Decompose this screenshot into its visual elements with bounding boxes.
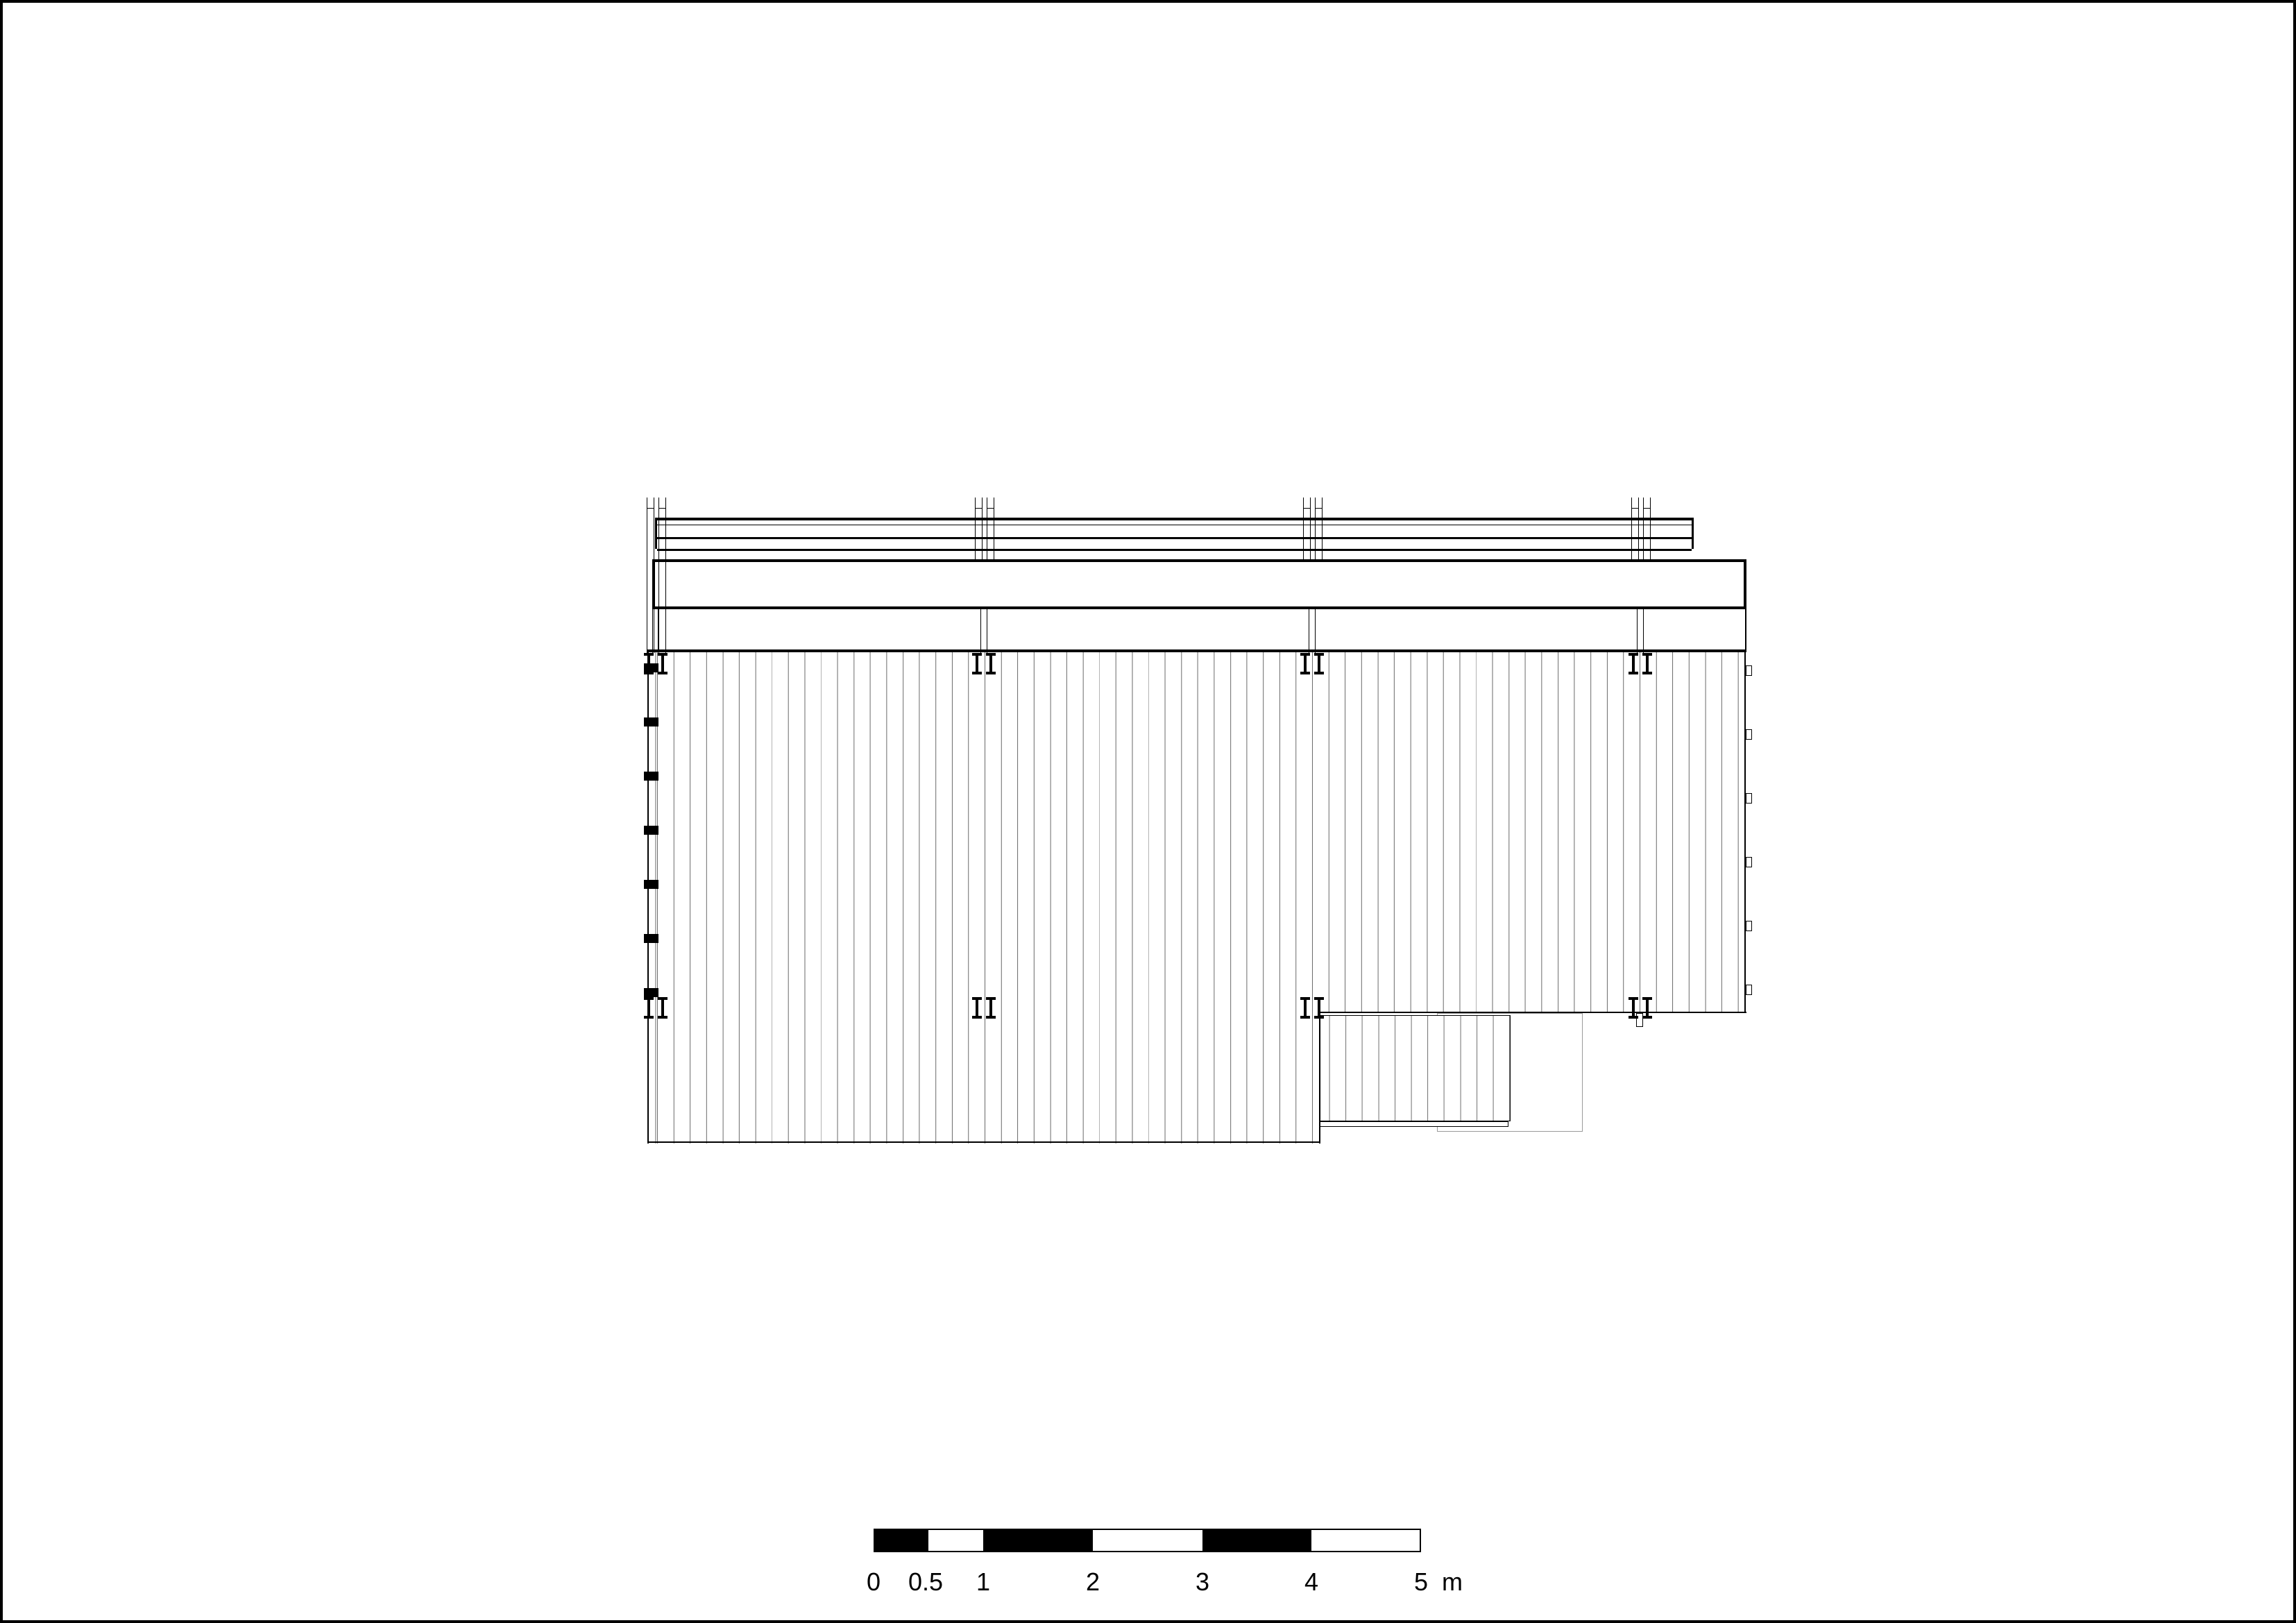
channel-profile — [1642, 653, 1652, 674]
scale-bar-segment — [1093, 1530, 1202, 1551]
post-base-fitting — [972, 653, 996, 669]
board-clip — [1746, 921, 1752, 931]
post-shaft — [1637, 609, 1644, 653]
purlin-bottom — [657, 534, 1692, 551]
joist-marker — [644, 717, 658, 726]
edge-beam-band — [658, 609, 1746, 652]
board-clip — [1746, 985, 1752, 995]
scale-label-0-5: 0.5 — [908, 1567, 943, 1597]
scale-unit-label: m — [1442, 1567, 1463, 1597]
joist-marker — [644, 934, 658, 943]
channel-profile — [986, 997, 996, 1019]
deck-right-edge — [1744, 652, 1746, 1013]
step-fascia — [1320, 1121, 1508, 1127]
roof-beam-band — [652, 559, 1746, 609]
channel-profile — [972, 997, 982, 1019]
scale-bar — [874, 1529, 1421, 1552]
scale-label-1: 1 — [976, 1567, 990, 1597]
post-base-fitting — [1300, 653, 1324, 669]
post-base-fitting — [972, 997, 996, 1013]
scale-label-0: 0 — [867, 1567, 881, 1597]
post-base-fitting — [1629, 653, 1652, 669]
joist-marker — [644, 772, 658, 781]
post-shaft — [652, 609, 659, 653]
channel-profile — [1629, 997, 1638, 1019]
scale-label-4: 4 — [1304, 1567, 1318, 1597]
board-clip — [1746, 793, 1752, 804]
post-shaft — [1309, 609, 1316, 653]
channel-profile — [986, 653, 996, 674]
scale-bar-segment — [1202, 1530, 1311, 1551]
joist-marker — [644, 880, 658, 889]
scale-label-2: 2 — [1086, 1567, 1100, 1597]
purlin-band — [655, 518, 1694, 549]
deck-top-edge — [647, 649, 1746, 652]
scale-bar-segment — [875, 1530, 928, 1551]
channel-profile — [972, 653, 982, 674]
board-clip — [1746, 729, 1752, 740]
deck-bottom-edge-right — [1319, 1012, 1746, 1013]
deck-bottom-edge-left — [647, 1141, 1320, 1143]
channel-profile — [1314, 653, 1324, 674]
board-clip — [1746, 665, 1752, 676]
channel-profile — [1300, 997, 1310, 1019]
scale-label-5: 5 — [1414, 1567, 1428, 1597]
scale-label-3: 3 — [1196, 1567, 1209, 1597]
board-clip — [1746, 857, 1752, 867]
post-base-fitting — [644, 997, 667, 1013]
scale-bar-segment — [928, 1530, 983, 1551]
post-shaft — [980, 609, 987, 653]
scale-bar-segment — [983, 1530, 1093, 1551]
channel-profile — [644, 997, 654, 1019]
channel-profile — [658, 653, 667, 674]
scale-bar-segment — [1311, 1530, 1420, 1551]
channel-profile — [1314, 997, 1324, 1019]
joist-marker — [644, 663, 658, 672]
drawing-sheet: 0 0.5 1 2 3 4 5 m — [0, 0, 2296, 1623]
step-boards — [1320, 1015, 1511, 1121]
channel-profile — [658, 997, 667, 1019]
joist-marker — [644, 826, 658, 835]
post-base-fitting — [1629, 997, 1652, 1013]
joist-marker — [644, 988, 658, 997]
channel-profile — [1300, 653, 1310, 674]
channel-profile — [1629, 653, 1638, 674]
channel-profile — [1642, 997, 1652, 1019]
post-base-fitting — [1300, 997, 1324, 1013]
